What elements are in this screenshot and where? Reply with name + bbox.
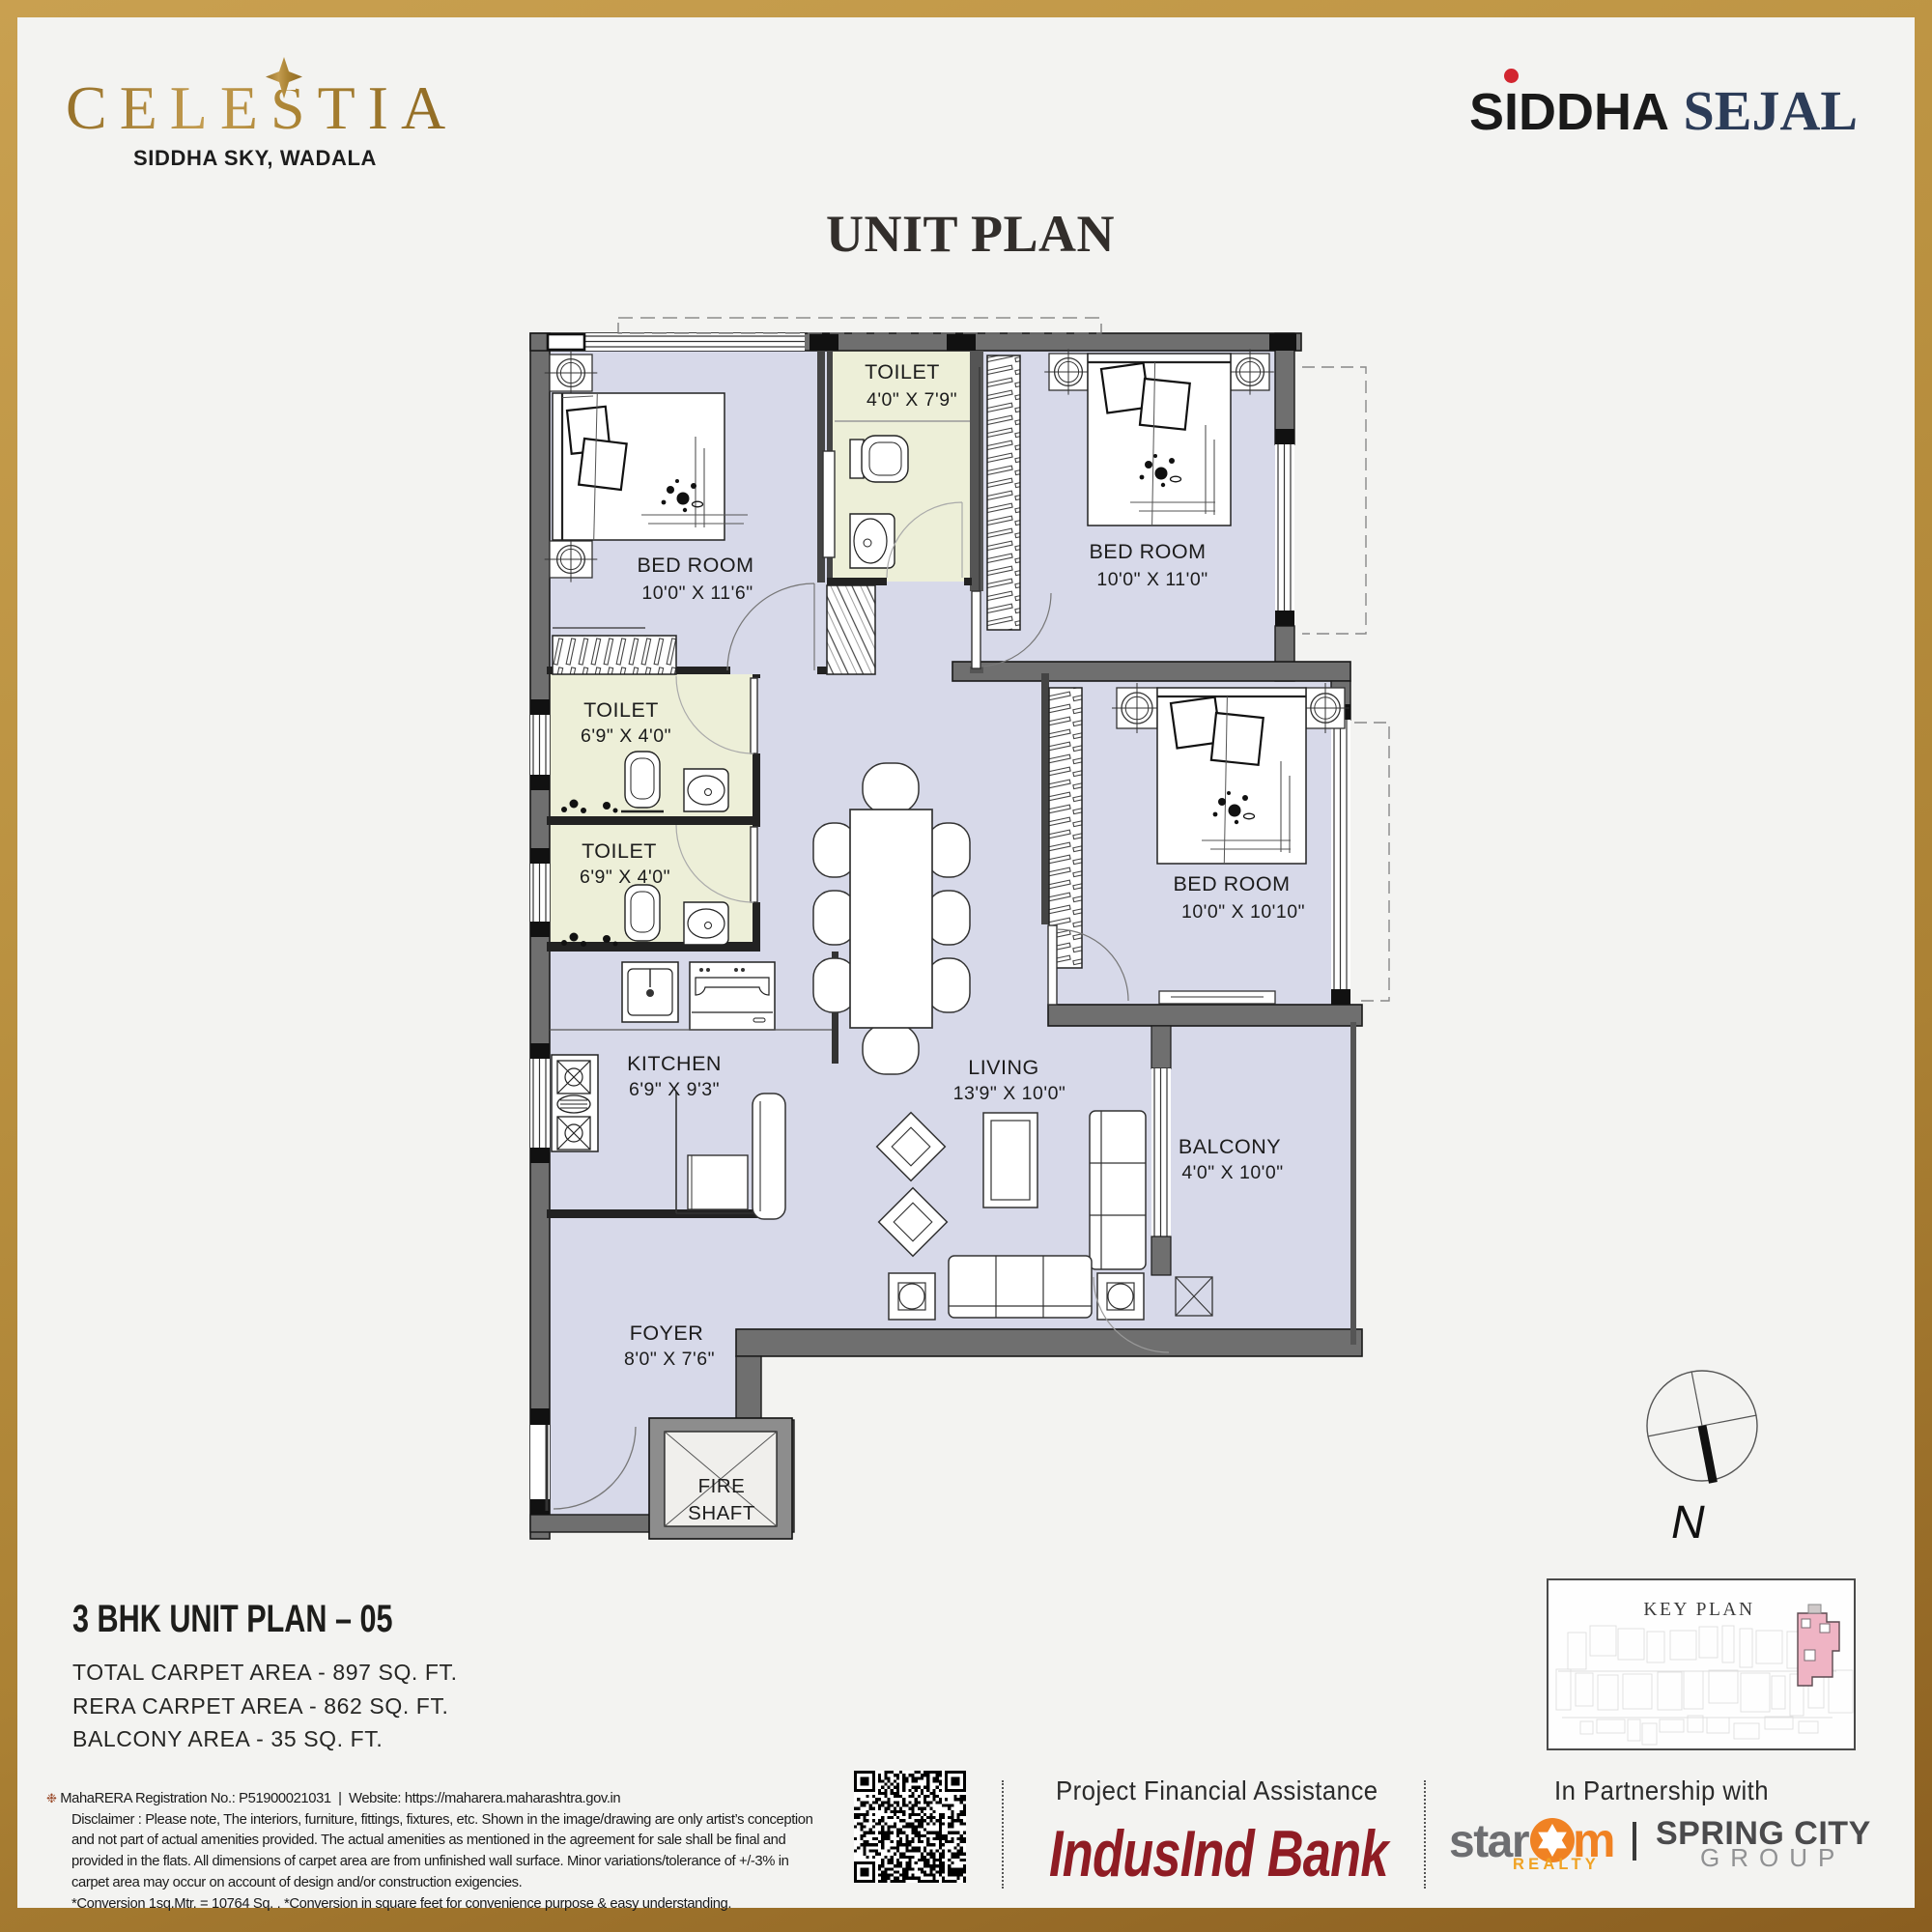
svg-text:8'0" X 7'6": 8'0" X 7'6" <box>624 1349 715 1370</box>
svg-text:BALCONY: BALCONY <box>1179 1135 1281 1158</box>
svg-text:10'0" X 11'0": 10'0" X 11'0" <box>1096 569 1207 590</box>
svg-text:BED ROOM: BED ROOM <box>1173 872 1290 895</box>
svg-text:FIRE: FIRE <box>698 1475 746 1497</box>
svg-text:FOYER: FOYER <box>630 1321 704 1345</box>
svg-text:4'0" X 10'0": 4'0" X 10'0" <box>1181 1162 1283 1183</box>
svg-text:N: N <box>1671 1497 1705 1548</box>
svg-text:13'9" X 10'0": 13'9" X 10'0" <box>953 1083 1066 1104</box>
svg-text:6'9" X 4'0": 6'9" X 4'0" <box>581 725 671 747</box>
svg-text:LIVING: LIVING <box>968 1056 1039 1079</box>
svg-text:6'9" X 9'3": 6'9" X 9'3" <box>629 1079 720 1100</box>
svg-text:SHAFT: SHAFT <box>688 1502 755 1524</box>
svg-text:TOILET: TOILET <box>865 360 940 384</box>
svg-text:KEY PLAN: KEY PLAN <box>1643 1600 1754 1620</box>
svg-text:REALTY: REALTY <box>1513 1856 1600 1873</box>
svg-text:KITCHEN: KITCHEN <box>627 1052 722 1075</box>
svg-text:TOILET: TOILET <box>583 698 659 722</box>
svg-text:TOILET: TOILET <box>582 839 657 863</box>
svg-text:10'0" X 10'10": 10'0" X 10'10" <box>1181 901 1305 923</box>
svg-text:6'9" X 4'0": 6'9" X 4'0" <box>580 867 670 888</box>
svg-text:BED ROOM: BED ROOM <box>637 554 753 577</box>
svg-text:10'0" X 11'6": 10'0" X 11'6" <box>641 582 753 604</box>
svg-text:BED ROOM: BED ROOM <box>1089 540 1206 563</box>
svg-text:4'0" X 7'9": 4'0" X 7'9" <box>867 389 957 411</box>
